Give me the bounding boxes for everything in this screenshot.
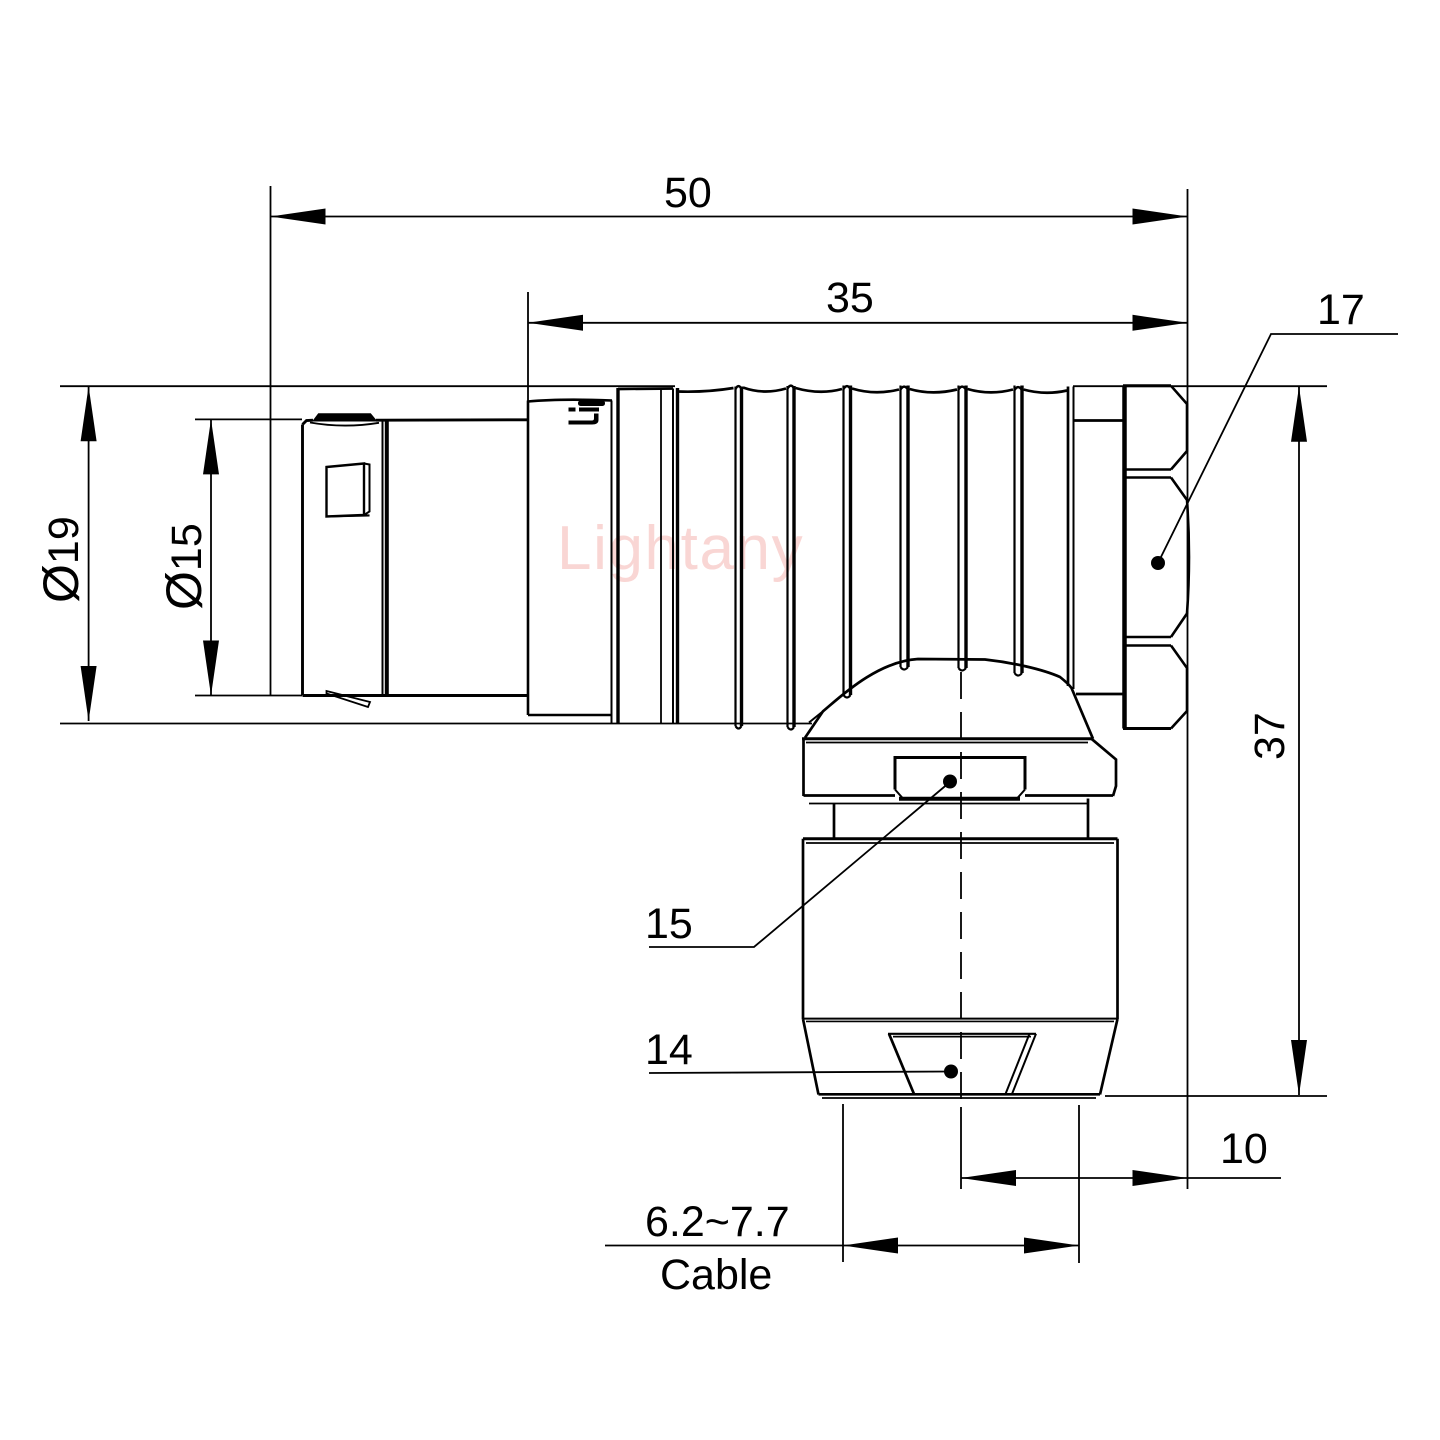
svg-text:50: 50 xyxy=(664,169,712,217)
svg-text:Ø19: Ø19 xyxy=(33,516,89,603)
svg-text:6.2~7.7: 6.2~7.7 xyxy=(645,1198,790,1246)
svg-text:Cable: Cable xyxy=(660,1251,772,1299)
svg-text:15: 15 xyxy=(645,900,693,948)
svg-text:14: 14 xyxy=(645,1026,693,1074)
svg-text:Lightany: Lightany xyxy=(557,514,804,583)
svg-text:37: 37 xyxy=(1246,712,1294,760)
svg-text:35: 35 xyxy=(826,274,874,322)
svg-text:10: 10 xyxy=(1220,1125,1268,1173)
svg-text:Ø15: Ø15 xyxy=(156,523,212,610)
svg-text:17: 17 xyxy=(1317,286,1365,334)
